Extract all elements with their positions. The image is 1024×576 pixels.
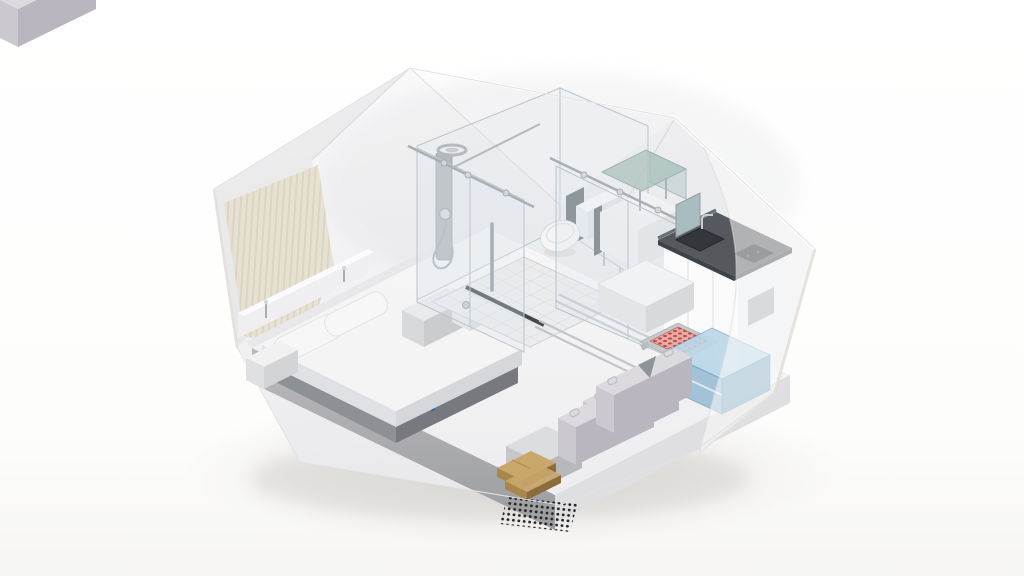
door-roller	[441, 160, 447, 166]
render-canvas	[0, 0, 1024, 576]
isometric-scene	[0, 0, 1024, 576]
